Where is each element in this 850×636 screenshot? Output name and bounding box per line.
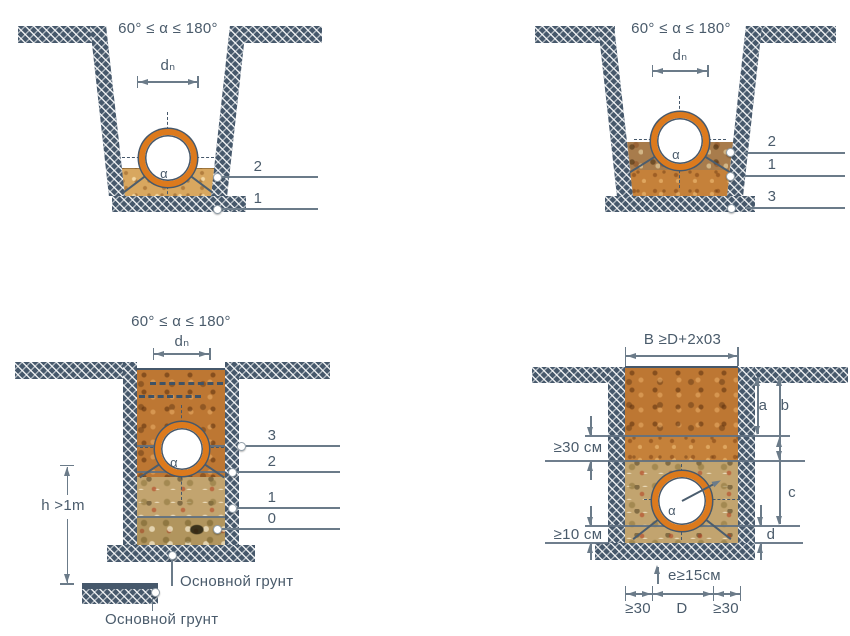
dim-tick — [707, 65, 709, 77]
pipe — [155, 422, 209, 476]
trench-floor — [107, 545, 255, 562]
angle-condition-label: 60° ≤ α ≤ 180° — [606, 21, 756, 38]
pipe-diameter-d-label: D — [672, 601, 692, 618]
callout-dot — [168, 551, 177, 560]
backfill-layer — [625, 368, 738, 436]
callout-number: 0 — [262, 511, 282, 528]
dim-arrow-down — [587, 427, 593, 436]
callout-line — [222, 208, 318, 210]
angle-condition-label: 60° ≤ α ≤ 180° — [108, 314, 254, 331]
callout-line — [745, 152, 845, 154]
ground-surface-left — [15, 362, 123, 379]
callout-dot — [726, 148, 735, 157]
callout-dot — [213, 205, 222, 214]
callout-line — [745, 175, 845, 177]
dim-arrow-right — [730, 591, 739, 597]
dim-line-c — [779, 438, 781, 524]
base-soil-label: Основной грунт — [105, 612, 215, 629]
width-dim-line — [626, 355, 738, 357]
dim-tick — [209, 348, 211, 360]
dim-arrow-up — [776, 438, 782, 447]
layer-boundary-line — [545, 460, 805, 462]
alpha-label: α — [664, 504, 680, 518]
callout-dot — [151, 588, 160, 597]
ground-surface-right — [239, 362, 330, 379]
dim-label-b: b — [778, 398, 792, 415]
callout-number: 1 — [762, 157, 782, 174]
callout-dot — [228, 504, 237, 513]
callout-line — [246, 445, 340, 447]
dim-label-d: d — [764, 527, 778, 544]
callout-number: 1 — [262, 490, 282, 507]
dim-arrow-up — [64, 467, 70, 476]
trench-wall-right — [738, 367, 755, 543]
layer-boundary-line — [585, 435, 790, 437]
callout-line — [745, 207, 845, 209]
dim-arrow-right — [697, 68, 706, 74]
dim-arrow-left — [715, 591, 724, 597]
side-clearance-right-label: ≥30 — [708, 601, 744, 618]
trench-wall-right — [211, 26, 246, 196]
dim-arrow-left — [627, 591, 636, 597]
trench-diagrams-canvas: 60° ≤ α ≤ 180° dₙ α 2 1 60° ≤ α ≤ 180° d… — [0, 0, 850, 636]
depth-dim-tick-top — [60, 465, 74, 467]
dim-arrow-right — [703, 591, 712, 597]
fill-top-line — [137, 368, 225, 370]
dim-label-a: a — [756, 398, 770, 415]
callout-number: 3 — [762, 189, 782, 206]
callout-line — [222, 176, 318, 178]
dim-arrow-up — [587, 462, 593, 471]
dim-arrow-up — [654, 565, 660, 574]
callout-line — [222, 528, 340, 530]
angle-condition-label: 60° ≤ α ≤ 180° — [95, 21, 241, 38]
dim-tick — [652, 65, 654, 77]
base-soil-hatch — [82, 589, 158, 604]
callout-number: 2 — [262, 454, 282, 471]
dim-tick — [137, 76, 139, 88]
dim-arrow-right — [199, 351, 208, 357]
dim-tick — [153, 348, 155, 360]
dim-tick — [625, 347, 627, 366]
ground-surface-left — [532, 367, 608, 383]
layer-min-30cm-label: ≥30 см — [552, 440, 604, 457]
dim-arrow-down — [64, 574, 70, 583]
dim-tick — [713, 586, 715, 601]
callout-dot — [726, 172, 735, 181]
alpha-label: α — [166, 456, 182, 470]
trench-floor — [112, 196, 246, 212]
soil-layer-sand — [629, 170, 731, 196]
dim-tick — [197, 76, 199, 88]
dim-arrow-up — [754, 377, 760, 386]
fill-top-line — [625, 366, 738, 368]
alpha-label: α — [668, 148, 684, 162]
pipe-diameter-label: dₙ — [154, 334, 210, 351]
callout-number: 1 — [248, 191, 268, 208]
callout-number: 3 — [262, 428, 282, 445]
dim-tick — [740, 586, 742, 601]
trench-wall-left — [598, 26, 633, 196]
ground-surface-right — [237, 26, 322, 43]
depth-dim-tick-bottom — [60, 583, 74, 585]
callout-dot — [213, 525, 222, 534]
callout-line — [237, 507, 340, 509]
pipe-diameter-label: dₙ — [652, 48, 708, 65]
base-soil-label: Основной грунт — [180, 574, 290, 591]
trench-wall-right — [225, 362, 239, 545]
alpha-label: α — [156, 167, 172, 181]
compaction-line — [139, 395, 201, 398]
callout-number: 2 — [762, 134, 782, 151]
layer-boundary-line — [137, 516, 225, 518]
soil-layer-middle — [625, 436, 738, 461]
dim-arrow-left — [654, 591, 663, 597]
dim-arrow-right — [188, 79, 197, 85]
trench-wall-left — [90, 26, 125, 196]
ground-surface-right — [750, 26, 836, 43]
trench-width-condition-label: B ≥D+2x03 — [610, 332, 755, 349]
callout-line — [237, 471, 340, 473]
trench-wall-left — [608, 367, 625, 543]
bedding-min-label: e≥15см — [668, 568, 720, 585]
dim-tick — [652, 586, 654, 601]
leader-line — [171, 560, 173, 586]
dim-arrow-up — [776, 377, 782, 386]
dim-arrow-down — [757, 517, 763, 526]
layer-min-10cm-label: ≥10 см — [552, 527, 604, 544]
callout-dot — [228, 468, 237, 477]
dim-arrow-down — [587, 517, 593, 526]
dim-tick — [737, 347, 739, 366]
pipe-diameter-label: dₙ — [140, 58, 196, 75]
dim-arrow-left — [155, 351, 164, 357]
dim-arrow-left — [627, 353, 636, 359]
trench-wall-left — [123, 362, 137, 545]
trench-floor — [595, 543, 755, 560]
dim-arrow-down — [776, 516, 782, 525]
callout-dot — [213, 173, 222, 182]
dim-arrow-down — [754, 426, 760, 435]
dim-arrow-left — [654, 68, 663, 74]
callout-dot — [237, 442, 246, 451]
trench-wall-right — [727, 26, 762, 196]
dim-arrow-right — [728, 353, 737, 359]
dim-arrow-up — [757, 544, 763, 553]
dim-arrow-right — [642, 591, 651, 597]
leader-line — [152, 597, 154, 611]
dim-arrow-up — [587, 544, 593, 553]
dim-arrow-left — [139, 79, 148, 85]
dim-label-c: c — [785, 485, 799, 502]
soil-layer-coarse-0 — [137, 517, 225, 545]
trench-depth-label: h >1m — [34, 498, 92, 515]
dim-tick — [625, 586, 627, 601]
compaction-line — [150, 382, 223, 385]
callout-dot — [727, 204, 736, 213]
side-clearance-left-label: ≥30 — [620, 601, 656, 618]
callout-number: 2 — [248, 159, 268, 176]
ground-surface-left — [18, 26, 98, 43]
ground-surface-right — [755, 367, 848, 383]
